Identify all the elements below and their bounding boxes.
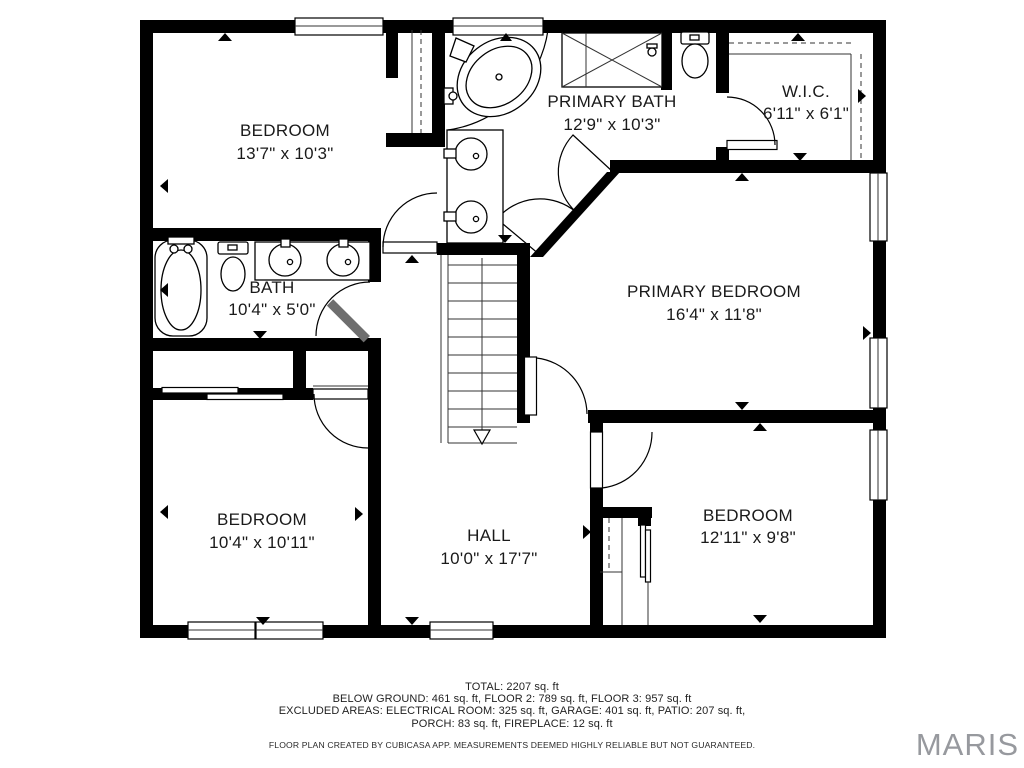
stair-direction-arrow <box>474 258 490 444</box>
maris-watermark: MARIS <box>916 727 1019 763</box>
room-dims: 12'11" x 9'8" <box>700 528 796 547</box>
wall-primarybedroom-bottom <box>588 410 886 423</box>
wall-hall-left <box>368 338 381 625</box>
room-name: BEDROOM <box>703 506 793 525</box>
summary-excluded: EXCLUDED AREAS: ELECTRICAL ROOM: 325 sq.… <box>0 705 1024 717</box>
wall-wic-left-upper <box>716 20 729 93</box>
wall-exterior-left <box>140 20 153 638</box>
room-dims: 13'7" x 10'3" <box>236 144 333 163</box>
vanity-hall-bath <box>255 239 370 280</box>
room-name: HALL <box>467 526 511 545</box>
shower <box>562 33 662 87</box>
corner-bathtub <box>441 21 556 133</box>
vanity-primary <box>444 130 503 243</box>
toilet-primary <box>681 32 709 78</box>
door-primary-bedroom <box>525 357 588 415</box>
room-dims: 16'4" x 11'8" <box>666 305 762 324</box>
wall-exterior-right <box>873 20 886 638</box>
door-bedroom-top-left <box>383 193 437 253</box>
floor-plan-page: BEDROOM 13'7" x 10'3" PRIMARY BATH 12'9"… <box>0 0 1024 768</box>
room-name: W.I.C. <box>782 82 830 101</box>
wall-hallcloset-corner <box>638 513 651 526</box>
door-bedroom-bottom-right <box>591 432 653 488</box>
room-label-bedroom-top-left: BEDROOM 13'7" x 10'3" <box>236 121 333 163</box>
floor-plan-canvas: BEDROOM 13'7" x 10'3" PRIMARY BATH 12'9"… <box>0 0 1024 768</box>
room-label-bedroom-bottom-left: BEDROOM 10'4" x 10'11" <box>209 510 315 552</box>
room-dims: 10'4" x 10'11" <box>209 533 315 552</box>
shower-head <box>648 48 656 56</box>
wall-hall-right-upper <box>590 410 603 432</box>
area-summary: TOTAL: 2207 sq. ft BELOW GROUND: 461 sq.… <box>0 681 1024 751</box>
bathtub-hall-bath <box>155 237 207 336</box>
window <box>430 622 493 639</box>
wall-toilet-nook <box>661 28 672 90</box>
room-name: BATH <box>249 278 294 297</box>
room-label-wic: W.I.C. 6'11" x 6'1" <box>763 82 849 123</box>
summary-floors: BELOW GROUND: 461 sq. ft, FLOOR 2: 789 s… <box>0 693 1024 705</box>
room-name: BEDROOM <box>240 121 330 140</box>
room-name: PRIMARY BATH <box>547 92 676 111</box>
room-label-hall: HALL 10'0" x 17'7" <box>440 526 537 568</box>
wall-angled <box>530 172 620 257</box>
window <box>188 622 255 639</box>
window <box>295 18 383 35</box>
closet-slider-hall-closet <box>641 525 651 625</box>
disclaimer-text: FLOOR PLAN CREATED BY CUBICASA APP. MEAS… <box>0 739 1024 751</box>
toilet-hall-bath <box>218 242 248 291</box>
summary-total: TOTAL: 2207 sq. ft <box>0 681 1024 693</box>
wall-stairs-top <box>437 243 530 255</box>
wall-closettl-left <box>386 28 398 78</box>
door-bedroom-bottom-left <box>313 389 368 448</box>
room-name: PRIMARY BEDROOM <box>627 282 801 301</box>
wall-closettl-right <box>432 20 445 147</box>
room-label-bedroom-bottom-right: BEDROOM 12'11" x 9'8" <box>700 506 796 547</box>
window <box>870 430 887 500</box>
room-label-primary-bath: PRIMARY BATH 12'9" x 10'3" <box>547 92 676 134</box>
room-name: BEDROOM <box>217 510 307 529</box>
room-dims: 10'0" x 17'7" <box>440 549 537 568</box>
window <box>453 18 543 35</box>
room-dims: 10'4" x 5'0" <box>228 300 315 319</box>
room-label-primary-bedroom: PRIMARY BEDROOM 16'4" x 11'8" <box>627 282 801 324</box>
staircase <box>441 255 517 444</box>
wall-bath-bottom <box>153 338 381 351</box>
window <box>870 338 887 408</box>
room-dims: 12'9" x 10'3" <box>563 115 660 134</box>
summary-excluded-2: PORCH: 83 sq. ft, FIREPLACE: 12 sq. ft <box>0 718 1024 730</box>
room-dims: 6'11" x 6'1" <box>763 104 849 123</box>
door-bath <box>316 282 370 342</box>
wall-primarybedroom-top <box>610 160 886 173</box>
window <box>256 622 323 639</box>
window <box>870 173 887 241</box>
